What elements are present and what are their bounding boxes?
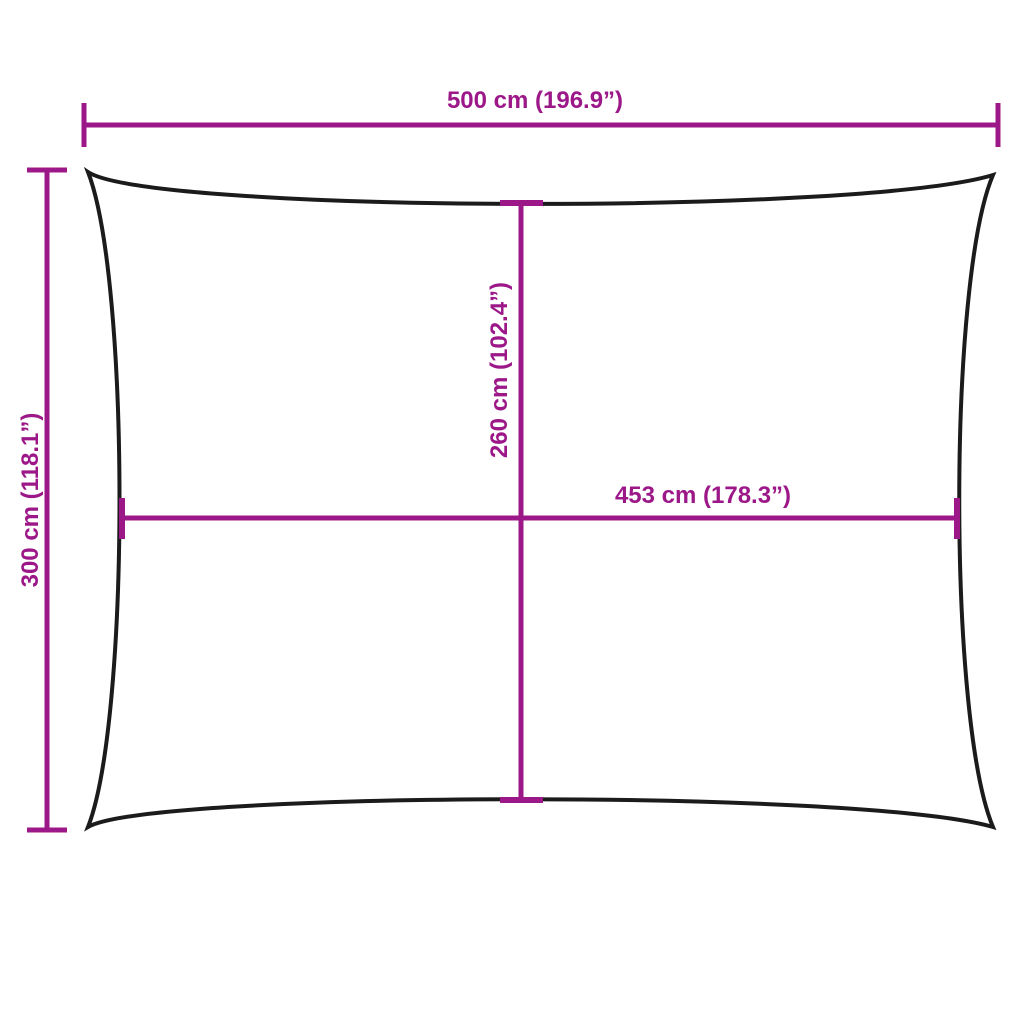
inner-height-label: 260 cm (102.4”) [486,282,513,458]
inner-width-label: 453 cm (178.3”) [615,482,791,509]
dimension-diagram: 500 cm (196.9”) 300 cm (118.1”) 260 cm (… [0,0,1024,1024]
overall-width-label: 500 cm (196.9”) [447,87,623,114]
overall-height-label: 300 cm (118.1”) [17,413,44,588]
shade-sail-outline [88,172,993,827]
overall-width-dimension: 500 cm (196.9”) [84,87,998,147]
overall-height-dimension: 300 cm (118.1”) [17,170,67,830]
product-dimension-image: 500 cm (196.9”) 300 cm (118.1”) 260 cm (… [0,0,1024,1024]
